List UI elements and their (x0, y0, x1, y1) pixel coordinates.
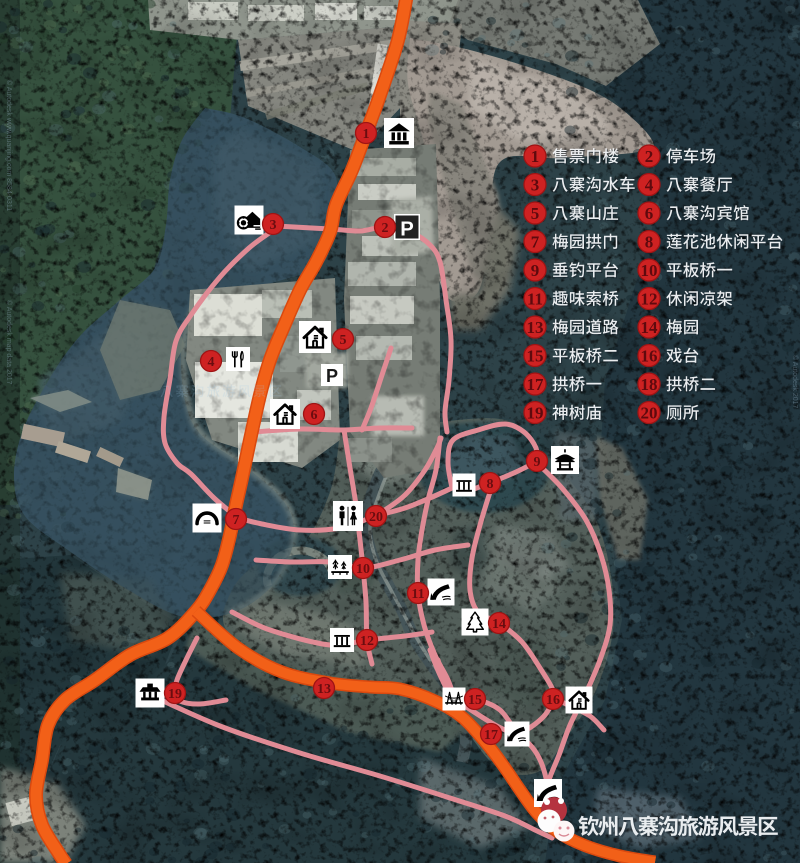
svg-text:P: P (326, 366, 338, 386)
svg-text:19: 19 (168, 687, 182, 702)
svg-text:9: 9 (531, 261, 540, 280)
svg-text:13: 13 (527, 318, 544, 337)
svg-text:© Autodesk 2017: © Autodesk 2017 (791, 355, 799, 409)
svg-text:7: 7 (531, 233, 540, 252)
svg-text:17: 17 (484, 728, 498, 743)
svg-text:13: 13 (317, 682, 331, 697)
svg-text:10: 10 (641, 261, 658, 280)
svg-text:© Autodesk www.quanjing.com: © Autodesk www.quanjing.com 8584-0311 (5, 80, 13, 211)
svg-text:20: 20 (641, 404, 658, 423)
svg-text:12: 12 (360, 634, 374, 649)
svg-text:2: 2 (382, 221, 389, 236)
svg-text:15: 15 (468, 693, 482, 708)
svg-text:1: 1 (363, 127, 370, 142)
svg-text:16: 16 (546, 693, 560, 708)
svg-text:3: 3 (531, 176, 540, 195)
svg-text:14: 14 (492, 617, 506, 632)
svg-text:8: 8 (645, 233, 654, 252)
svg-text:15: 15 (527, 347, 544, 366)
svg-text:5: 5 (531, 204, 540, 223)
svg-text:8: 8 (487, 477, 494, 492)
svg-text:12: 12 (641, 290, 658, 309)
svg-text:11: 11 (527, 290, 543, 309)
svg-text:7: 7 (233, 513, 240, 528)
svg-text:20: 20 (369, 510, 383, 525)
svg-text:4: 4 (208, 355, 215, 370)
svg-text:18: 18 (641, 375, 658, 394)
svg-text:16: 16 (641, 347, 658, 366)
svg-text:9: 9 (534, 455, 541, 470)
svg-text:17: 17 (527, 375, 545, 394)
svg-text:4: 4 (645, 176, 654, 195)
svg-text:© Autodesk map data 2017: © Autodesk map data 2017 (5, 300, 13, 385)
svg-text:1: 1 (531, 147, 540, 166)
svg-text:6: 6 (645, 204, 654, 223)
svg-text:2: 2 (645, 147, 654, 166)
svg-text:11: 11 (411, 587, 424, 602)
svg-text:10: 10 (356, 562, 370, 577)
svg-text:19: 19 (527, 404, 544, 423)
svg-text:3: 3 (270, 218, 277, 233)
svg-text:5: 5 (340, 333, 347, 348)
svg-text:14: 14 (641, 318, 659, 337)
svg-text:6: 6 (311, 408, 318, 423)
svg-text:P: P (400, 218, 414, 240)
